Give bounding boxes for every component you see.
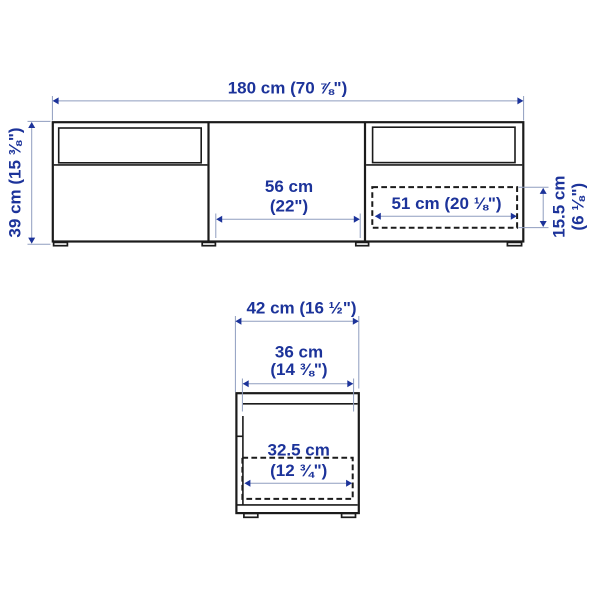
svg-text:32.5 cm: 32.5 cm (268, 440, 330, 459)
svg-text:(14 ⅜"): (14 ⅜") (270, 360, 327, 379)
svg-text:(12 ¾"): (12 ¾") (270, 461, 327, 480)
svg-text:56 cm: 56 cm (265, 177, 313, 196)
svg-text:36 cm: 36 cm (275, 343, 323, 362)
svg-text:15.5 cm: 15.5 cm (550, 176, 569, 238)
svg-text:(6 ⅛"): (6 ⅛") (569, 183, 588, 231)
svg-text:39 cm (15 ⅜"): 39 cm (15 ⅜") (6, 127, 25, 237)
svg-text:42 cm (16 ½"): 42 cm (16 ½") (246, 299, 356, 318)
svg-text:(22"): (22") (270, 197, 308, 216)
svg-text:180 cm (70 ⅞"): 180 cm (70 ⅞") (228, 79, 348, 98)
svg-text:51 cm (20 ⅛"): 51 cm (20 ⅛") (391, 194, 501, 213)
